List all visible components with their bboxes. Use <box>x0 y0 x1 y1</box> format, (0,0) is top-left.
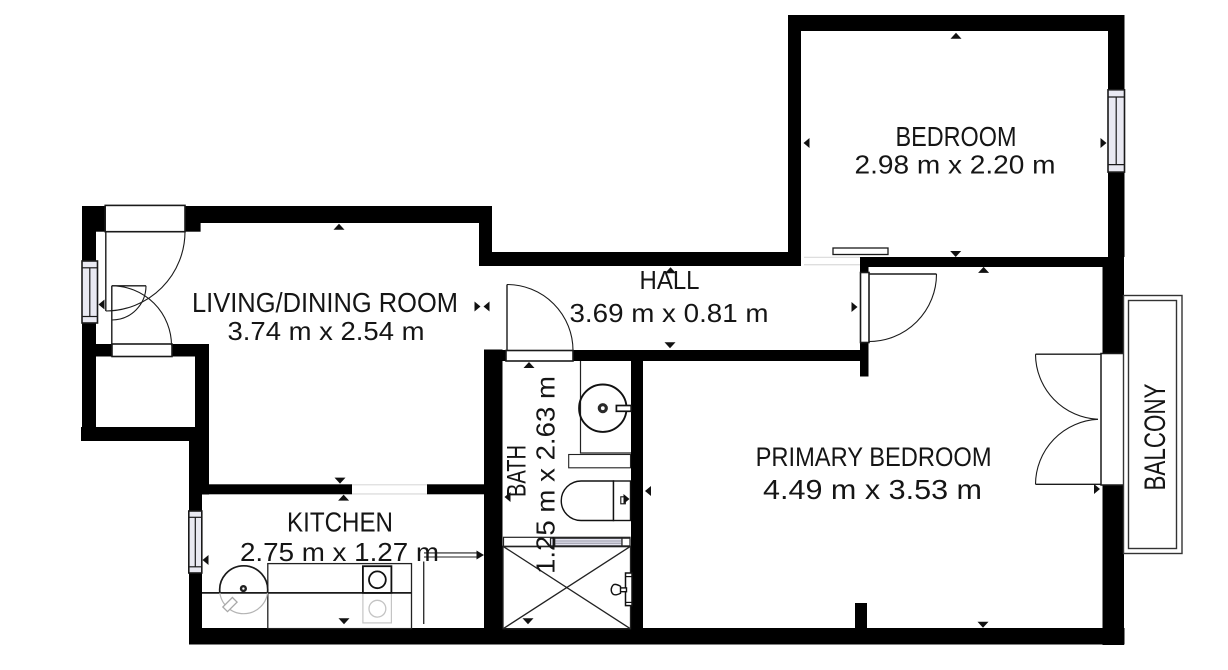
svg-text:3.74 m x 2.54 m: 3.74 m x 2.54 m <box>228 316 425 346</box>
svg-text:4.49 m x 3.53 m: 4.49 m x 3.53 m <box>763 474 982 505</box>
svg-text:BALCONY: BALCONY <box>1139 384 1172 491</box>
svg-text:KITCHEN: KITCHEN <box>287 507 393 538</box>
svg-text:PRIMARY BEDROOM: PRIMARY BEDROOM <box>756 442 992 472</box>
svg-text:BATH: BATH <box>502 445 532 497</box>
svg-text:2.98 m x 2.20 m: 2.98 m x 2.20 m <box>855 150 1056 180</box>
svg-text:LIVING/DINING ROOM: LIVING/DINING ROOM <box>192 287 458 318</box>
svg-text:2.75 m x 1.27 m: 2.75 m x 1.27 m <box>240 537 439 567</box>
svg-text:HALL: HALL <box>640 265 700 295</box>
svg-text:BEDROOM: BEDROOM <box>896 121 1017 152</box>
svg-text:3.69 m x 0.81 m: 3.69 m x 0.81 m <box>570 298 769 328</box>
svg-text:1.25 m x 2.63 m: 1.25 m x 2.63 m <box>531 376 561 574</box>
